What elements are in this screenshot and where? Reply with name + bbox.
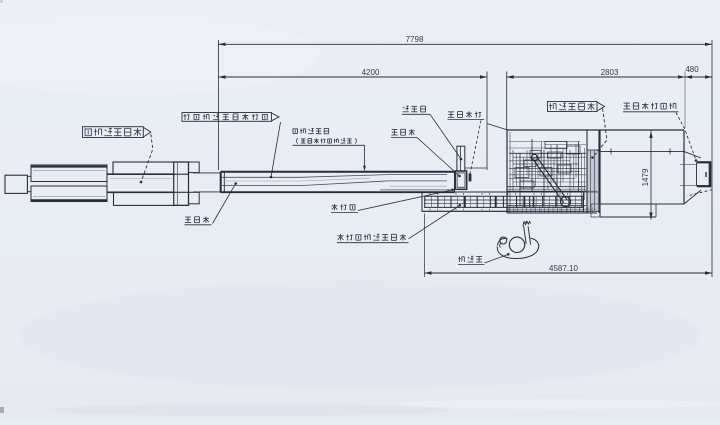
svg-text:480: 480 xyxy=(685,65,699,74)
svg-text:7798: 7798 xyxy=(406,35,424,44)
svg-text:4587.10: 4587.10 xyxy=(549,264,578,273)
svg-text:1479: 1479 xyxy=(641,168,650,186)
svg-text:4200: 4200 xyxy=(362,68,380,77)
svg-text:2803: 2803 xyxy=(601,68,619,77)
